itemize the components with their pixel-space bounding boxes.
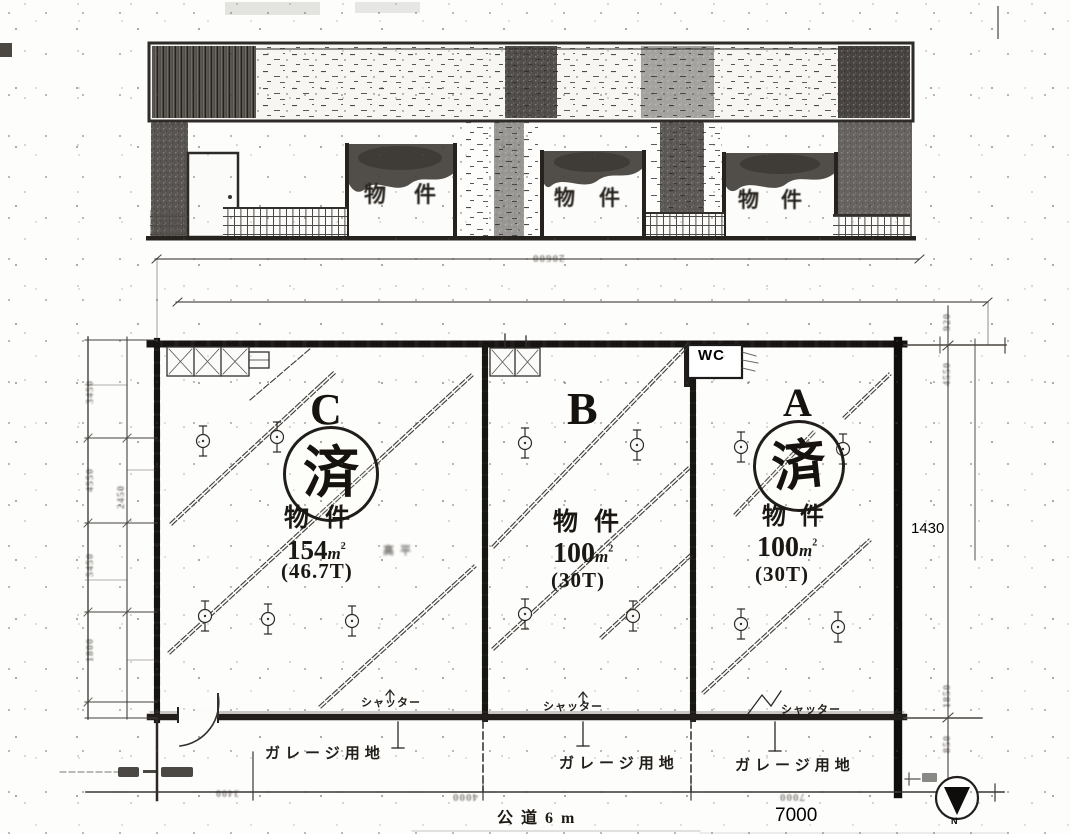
dim-left-4: 5450 [86,553,96,577]
unit-b-tsubo: (30T) [551,570,605,591]
width-dimension-7000: 7000 [775,806,817,825]
shutter-label-a: シャッター [781,705,841,716]
unit-a-tsubo: (30T) [755,564,809,585]
unit-c-area-sup: 2 [341,541,346,552]
wc-label: WC [698,348,725,363]
unit-a-area-sup: 2 [812,538,817,549]
unit-b-label: 物件 [553,510,635,535]
unit-c-tsubo: (46.7T) [281,561,353,582]
shutter-label-b: シャッター [543,702,603,713]
fixture-unit-b [490,334,540,376]
dim-right-2: 4550 [943,362,953,386]
unit-c-label: 物件 [284,506,366,531]
dim-right-3: 1850 [943,684,953,708]
dim-top: 20600 [532,252,565,263]
scan-artifact [225,2,320,15]
unit-a-area-unit: m [799,541,812,560]
unit-b-area: 100m2 [553,540,613,568]
dim-left-5: 1800 [86,638,96,662]
plan-door-arc [178,694,219,746]
unit-b-area-unit: m [595,547,608,566]
elevation-sign-2: 物件 [554,188,644,209]
plan-linework-svg [0,0,1070,834]
dim-left-2: 4550 [86,468,96,492]
unit-c-note: 高平 [383,546,417,557]
road-label: 公道6m [497,811,582,827]
dim-left-1: 3450 [86,380,96,404]
side-dimension-1430: 1430 [911,521,944,536]
shutter-marks [386,690,781,751]
garage-label-c: ガレージ用地 [265,747,385,762]
floorplan-drawing [60,255,1008,833]
dim-bottom-right: 7000 [779,791,805,802]
unit-letter-b: B [567,386,598,432]
unit-a-area: 100m2 [757,534,817,562]
dim-corner: 3400 [215,787,239,797]
compass-n-label: N [951,817,958,826]
unit-b-area-sup: 2 [608,544,613,555]
garage-label-b: ガレージ用地 [559,757,679,772]
fixture-unit-c [167,347,269,376]
dim-right-4: 850 [943,735,953,753]
elevation-sign-1: 物件 [364,184,464,206]
unit-letter-a: A [783,383,812,423]
dim-left-3: 2450 [117,485,127,509]
dim-right-1: 920 [943,313,953,331]
dim-bottom-left: 4000 [452,791,478,802]
unit-a-label: 物件 [762,505,838,529]
unit-b-area-value: 100 [553,538,595,569]
unit-a-area-value: 100 [757,532,799,563]
shutter-label-c: シャッター [361,698,421,709]
bottom-left-dim-marks [60,767,193,777]
elevation-sign-3: 物件 [738,190,824,211]
garage-label-a: ガレージ用地 [735,759,855,774]
scanned-floor-plan: 物件 物件 物件 C 済 物件 154m2 高平 (46.7T) B 物件 10… [0,0,1070,834]
north-compass-icon [936,777,978,819]
